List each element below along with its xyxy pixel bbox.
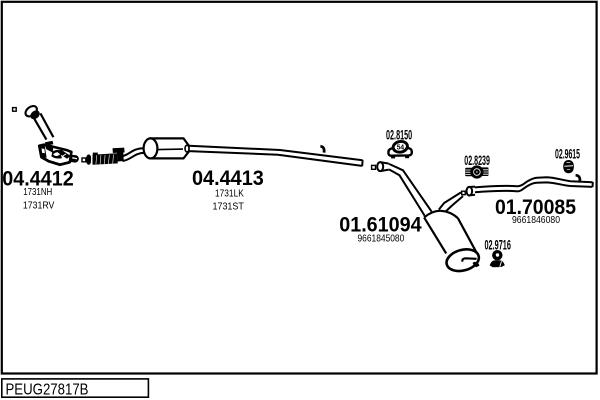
svg-text:02.9716: 02.9716 (485, 237, 512, 252)
svg-text:1731NH: 1731NH (23, 186, 52, 198)
svg-text:PEUG27817B: PEUG27817B (6, 382, 89, 399)
svg-text:1731RV: 1731RV (23, 200, 55, 212)
svg-text:1731ST: 1731ST (213, 201, 245, 213)
svg-text:9661846080: 9661846080 (512, 214, 560, 226)
svg-text:9661845080: 9661845080 (358, 233, 405, 245)
svg-text:02.8239: 02.8239 (464, 153, 490, 168)
svg-text:54: 54 (397, 142, 405, 151)
svg-text:1731LK: 1731LK (215, 187, 244, 199)
svg-text:02.8150: 02.8150 (386, 128, 412, 143)
svg-text:02.9615: 02.9615 (555, 146, 580, 161)
